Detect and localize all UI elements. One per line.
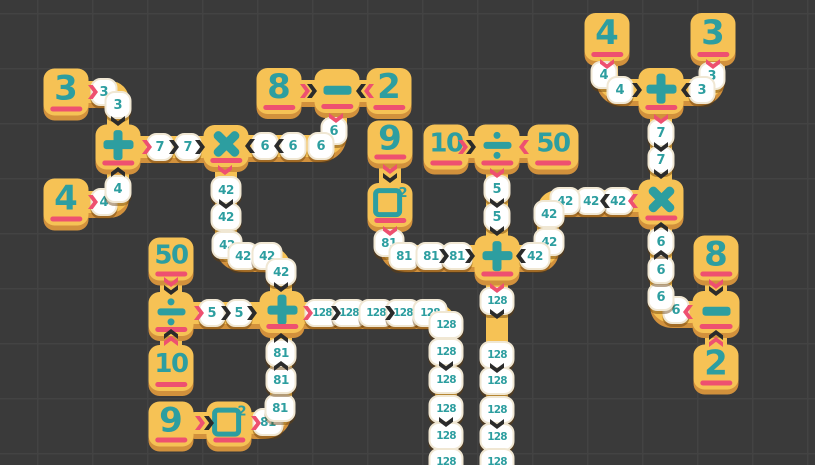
tile-underline — [700, 272, 732, 277]
token: 5 — [484, 175, 511, 203]
square-icon — [212, 407, 241, 436]
token-value: 42 — [541, 207, 557, 221]
token-value: 42 — [583, 194, 599, 208]
token-value: 7 — [656, 153, 665, 168]
token-value: 42 — [218, 183, 234, 197]
tile-underline — [102, 161, 134, 166]
divide-icon — [483, 131, 511, 158]
tile-number: 4 — [595, 16, 619, 50]
tile-underline — [321, 104, 353, 109]
times-icon — [210, 127, 242, 159]
token-value: 128 — [436, 346, 456, 358]
token-value: 128 — [436, 456, 456, 465]
tile-number: 9 — [159, 403, 183, 437]
token-value: 5 — [234, 306, 243, 321]
token: 128 — [429, 448, 464, 465]
tile-underline — [697, 52, 729, 57]
token-value: 7 — [183, 140, 192, 155]
token-value: 6 — [656, 290, 665, 305]
tile-num-50-b[interactable]: 50 — [149, 238, 194, 281]
tile-number: 50 — [536, 130, 569, 156]
tile-underline — [50, 217, 82, 222]
token: 128 — [480, 396, 515, 424]
tile-underline — [374, 155, 406, 160]
token-value: 5 — [492, 210, 501, 225]
token-value: 6 — [316, 139, 325, 154]
token-value: 128 — [487, 456, 507, 465]
tile-underline — [699, 324, 733, 329]
divide-icon — [157, 298, 185, 325]
token-value: 5 — [207, 306, 216, 321]
token-value: 128 — [393, 307, 413, 319]
tile-number: 3 — [701, 16, 725, 50]
tile-num-3-a[interactable]: 3 — [44, 69, 89, 116]
token-value: 81 — [272, 401, 288, 415]
token-value: 128 — [487, 349, 507, 361]
token-value: 128 — [487, 295, 507, 307]
token: 42 — [534, 200, 565, 228]
tile-num-10-b[interactable]: 10 — [149, 345, 194, 391]
token-value: 128 — [487, 404, 507, 416]
tile-number: 10 — [154, 351, 187, 377]
times-icon — [645, 183, 677, 215]
tile-op-plus-a[interactable] — [96, 125, 141, 170]
plus-icon — [103, 130, 133, 160]
tile-op-times-b[interactable] — [639, 180, 684, 225]
token-value: 128 — [339, 307, 359, 319]
token-value: 128 — [436, 403, 456, 415]
tile-op-times-a[interactable] — [204, 125, 249, 167]
tile-underline — [210, 158, 242, 163]
tile-underline — [645, 105, 677, 110]
tile-number: 3 — [54, 71, 78, 105]
tile-number: 2 — [704, 346, 728, 380]
token-value: 128 — [312, 307, 332, 319]
tile-underline — [266, 324, 298, 329]
token: 6 — [648, 283, 675, 311]
token-value: 7 — [155, 140, 164, 155]
token-value: 42 — [235, 249, 251, 263]
tile-number: 4 — [54, 181, 78, 215]
token-value: 3 — [113, 98, 122, 113]
token-value: 128 — [436, 319, 456, 331]
tile-underline — [481, 272, 513, 277]
tile-underline — [430, 161, 462, 166]
tile-op-minus-b[interactable] — [693, 291, 740, 333]
token-value: 81 — [396, 249, 412, 263]
token-value: 128 — [487, 431, 507, 443]
token-value: 4 — [113, 182, 122, 197]
tile-num-2-a[interactable]: 2 — [367, 68, 412, 114]
tile-op-plus-c[interactable] — [475, 236, 520, 281]
token-value: 128 — [487, 375, 507, 387]
tile-underline — [213, 438, 245, 443]
tile-num-9-a[interactable]: 9 — [368, 121, 413, 164]
tile-num-8-b[interactable]: 8 — [694, 236, 739, 281]
exponent-label: 2 — [237, 405, 246, 420]
tile-num-50-a[interactable]: 50 — [528, 125, 579, 170]
path-segment — [302, 313, 446, 465]
token: 6 — [648, 256, 675, 284]
tile-num-9-b[interactable]: 9 — [149, 402, 194, 447]
token: 42 — [211, 176, 242, 204]
tile-underline — [50, 107, 82, 112]
token: 3 — [689, 76, 716, 104]
tile-underline — [373, 105, 405, 110]
token-value: 5 — [492, 182, 501, 197]
tile-number: 2 — [377, 70, 401, 104]
token-value: 42 — [218, 210, 234, 224]
path-segment — [302, 318, 446, 465]
tile-number: 9 — [378, 121, 402, 155]
tile-underline — [263, 105, 295, 110]
tile-underline — [155, 272, 187, 277]
token-value: 81 — [449, 249, 465, 263]
token-value: 128 — [436, 374, 456, 386]
token-value: 42 — [610, 194, 626, 208]
tile-number: 50 — [154, 242, 187, 268]
token: 42 — [266, 258, 297, 286]
token-value: 81 — [273, 373, 289, 387]
token-value: 6 — [288, 139, 297, 154]
token-value: 4 — [615, 83, 624, 98]
token-value: 42 — [273, 265, 289, 279]
plus-icon — [646, 74, 676, 104]
exponent-label: 2 — [398, 186, 407, 201]
token: 6 — [280, 132, 307, 160]
tile-number: 10 — [429, 130, 462, 156]
token: 128 — [480, 341, 515, 369]
token: 128 — [429, 311, 464, 339]
tile-num-3-b[interactable]: 3 — [691, 13, 736, 61]
token: 4 — [105, 175, 132, 203]
token-value: 128 — [436, 430, 456, 442]
token-value: 81 — [273, 346, 289, 360]
tile-number: 8 — [704, 237, 728, 271]
tile-number: 8 — [267, 70, 291, 104]
plus-icon — [482, 241, 512, 271]
tile-underline — [374, 218, 406, 223]
token-value: 3 — [697, 83, 706, 98]
token-value: 6 — [656, 235, 665, 250]
token-value: 6 — [260, 139, 269, 154]
tile-underline — [591, 52, 623, 57]
token: 3 — [105, 91, 132, 119]
token: 128 — [429, 395, 464, 423]
token-value: 7 — [656, 126, 665, 141]
minus-icon — [323, 86, 351, 95]
tile-op-minus-a[interactable] — [315, 69, 360, 113]
token: 6 — [308, 132, 335, 160]
tile-op-divide-a[interactable] — [475, 125, 520, 170]
square-icon — [373, 188, 402, 217]
token: 42 — [520, 242, 551, 270]
token: 81 — [266, 366, 297, 394]
puzzle-board: 3482921050438250109233447766664242424242… — [0, 0, 815, 465]
token-value: 6 — [656, 263, 665, 278]
tile-underline — [700, 381, 732, 386]
tile-num-8-a[interactable]: 8 — [257, 68, 302, 114]
token: 128 — [480, 448, 515, 465]
tile-underline — [481, 161, 513, 166]
tile-num-10-a[interactable]: 10 — [424, 125, 469, 170]
plus-icon — [267, 295, 297, 325]
tile-op-plus-d[interactable] — [639, 68, 684, 114]
token-value: 128 — [366, 307, 386, 319]
tile-num-4-b[interactable]: 4 — [585, 13, 630, 61]
token: 81 — [265, 394, 296, 422]
token: 128 — [429, 338, 464, 366]
tile-underline — [535, 161, 572, 166]
tile-underline — [645, 216, 677, 221]
minus-icon — [702, 307, 730, 316]
tile-underline — [155, 438, 187, 443]
tile-op-square-a[interactable]: 2 — [368, 183, 413, 227]
tile-num-2-b[interactable]: 2 — [694, 345, 739, 390]
token-value: 42 — [527, 249, 543, 263]
token-value: 81 — [423, 249, 439, 263]
tile-op-plus-b[interactable] — [260, 291, 305, 333]
tile-underline — [155, 382, 187, 387]
token: 4 — [607, 76, 634, 104]
tile-num-4-a[interactable]: 4 — [44, 179, 89, 226]
